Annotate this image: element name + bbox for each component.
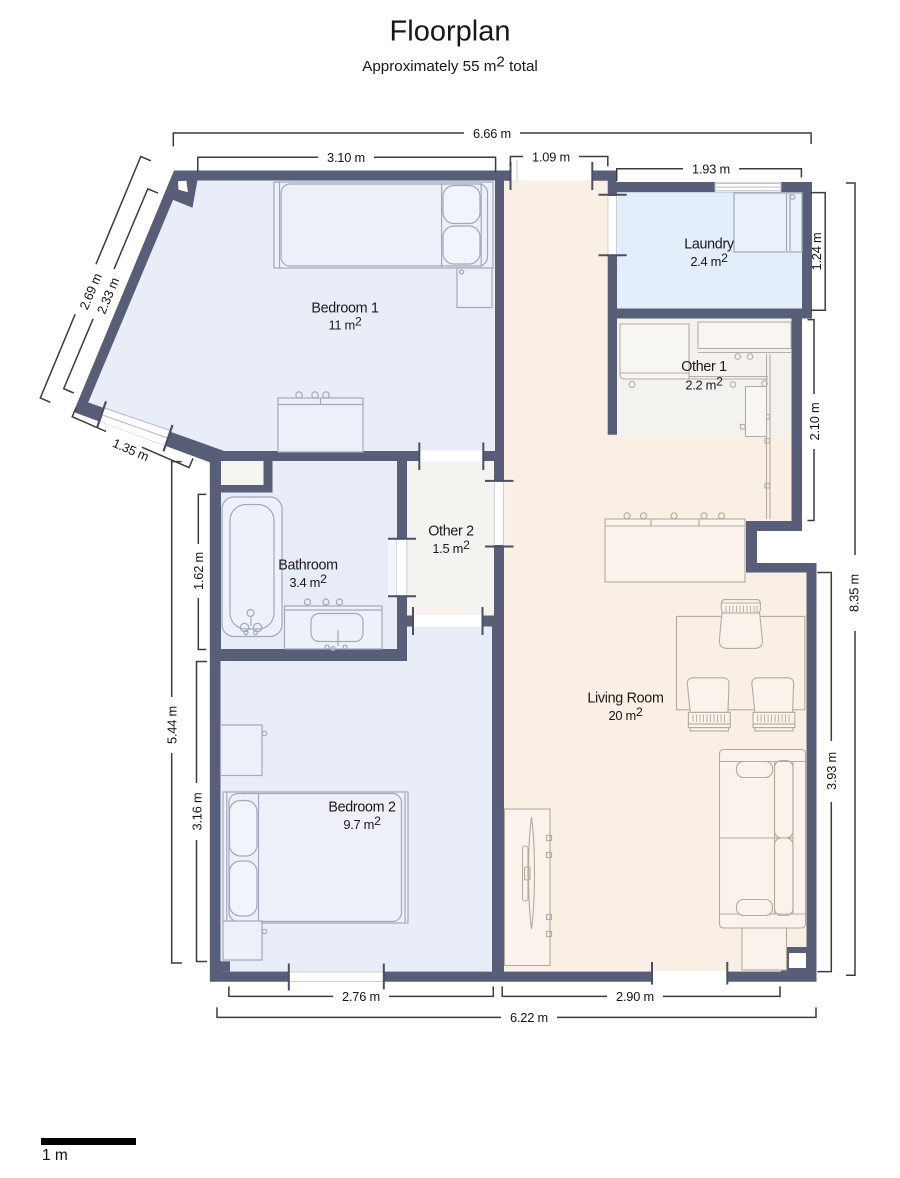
svg-text:1 m: 1 m — [42, 1147, 68, 1164]
svg-text:1.93 m: 1.93 m — [692, 162, 730, 177]
svg-text:1.09 m: 1.09 m — [532, 149, 570, 164]
svg-text:3.16 m: 3.16 m — [189, 793, 204, 831]
svg-text:Other 1: Other 1 — [681, 359, 727, 375]
svg-text:Bathroom: Bathroom — [278, 558, 338, 574]
svg-text:6.22 m: 6.22 m — [510, 1010, 548, 1025]
svg-text:6.66 m: 6.66 m — [473, 126, 511, 141]
svg-text:3.93 m: 3.93 m — [824, 752, 839, 790]
svg-text:Living Room: Living Room — [587, 691, 663, 707]
svg-text:Bedroom 1: Bedroom 1 — [311, 301, 379, 317]
svg-text:2.76 m: 2.76 m — [342, 989, 380, 1004]
svg-text:Floorplan: Floorplan — [390, 16, 511, 48]
svg-text:1.24 m: 1.24 m — [809, 233, 824, 271]
svg-text:Approximately 55 m2 total: Approximately 55 m2 total — [362, 54, 538, 76]
svg-text:2.90 m: 2.90 m — [616, 989, 654, 1004]
svg-text:1.35 m: 1.35 m — [110, 435, 151, 464]
svg-text:5.44 m: 5.44 m — [165, 706, 180, 744]
svg-text:8.35 m: 8.35 m — [847, 574, 862, 612]
svg-text:Bedroom 2: Bedroom 2 — [328, 800, 396, 816]
svg-text:1.62 m: 1.62 m — [191, 552, 206, 590]
svg-text:3.10 m: 3.10 m — [327, 150, 365, 165]
svg-text:2.10 m: 2.10 m — [807, 403, 822, 441]
